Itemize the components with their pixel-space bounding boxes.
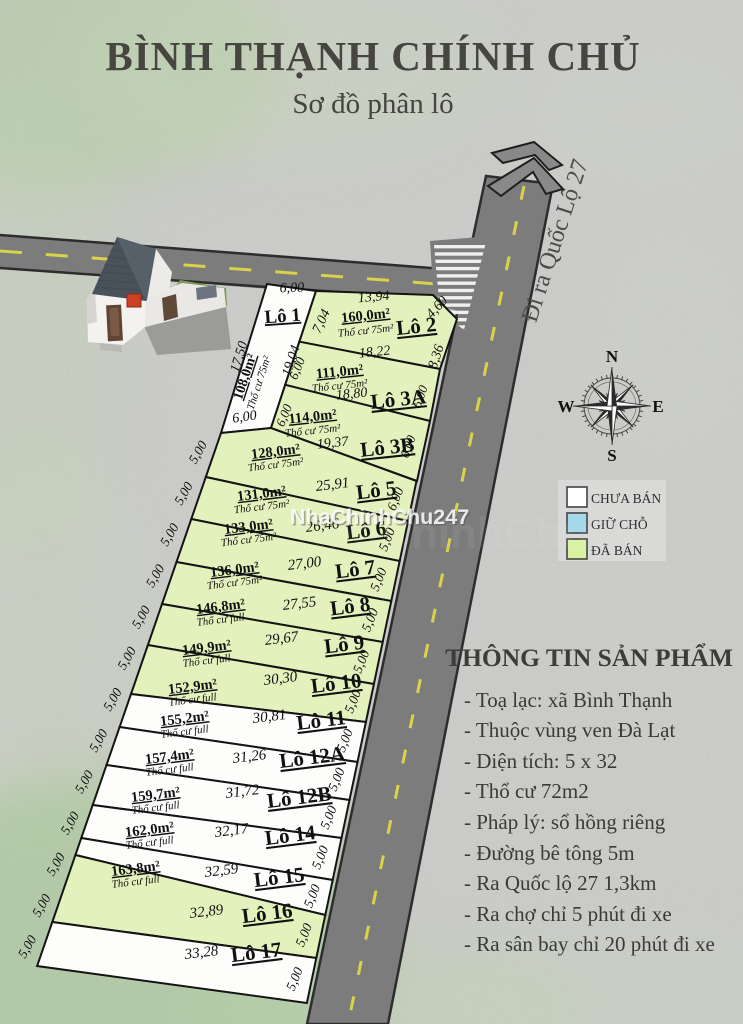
svg-text:E: E xyxy=(652,397,663,416)
svg-text:- Ra chợ chỉ 5 phút đi xe: - Ra chợ chỉ 5 phút đi xe xyxy=(464,902,672,926)
svg-text:- Pháp lý: sổ hồng riêng: - Pháp lý: sổ hồng riêng xyxy=(464,810,666,834)
svg-text:S: S xyxy=(607,446,616,465)
svg-text:- Thổ cư 72m2: - Thổ cư 72m2 xyxy=(464,779,589,803)
svg-text:CHƯA BÁN: CHƯA BÁN xyxy=(591,491,661,506)
svg-text:Lô 1: Lô 1 xyxy=(264,305,302,328)
svg-text:- Toạ lạc: xã Bình Thạnh: - Toạ lạc: xã Bình Thạnh xyxy=(464,688,673,712)
svg-text:- Ra Quốc lộ 27 1,3km: - Ra Quốc lộ 27 1,3km xyxy=(464,871,656,895)
svg-text:N: N xyxy=(606,347,619,366)
svg-text:NhaChinhChu247: NhaChinhChu247 xyxy=(290,505,469,529)
svg-text:- Đường bê tông 5m: - Đường bê tông 5m xyxy=(464,841,635,865)
svg-text:6,00: 6,00 xyxy=(279,281,304,297)
svg-text:- Thuộc vùng ven Đà Lạt: - Thuộc vùng ven Đà Lạt xyxy=(464,718,675,742)
svg-text:- Ra sân bay chỉ 20 phút đi xe: - Ra sân bay chỉ 20 phút đi xe xyxy=(464,932,715,956)
svg-text:BÌNH THẠNH CHÍNH CHỦ: BÌNH THẠNH CHÍNH CHỦ xyxy=(105,33,640,79)
svg-text:Sơ đồ phân lô: Sơ đồ phân lô xyxy=(292,88,453,120)
svg-text:W: W xyxy=(558,397,575,416)
svg-text:- Diện tích: 5 x 32: - Diện tích: 5 x 32 xyxy=(464,749,617,773)
svg-text:13,94: 13,94 xyxy=(357,289,390,307)
svg-text:THÔNG TIN SẢN PHẨM: THÔNG TIN SẢN PHẨM xyxy=(445,643,733,672)
